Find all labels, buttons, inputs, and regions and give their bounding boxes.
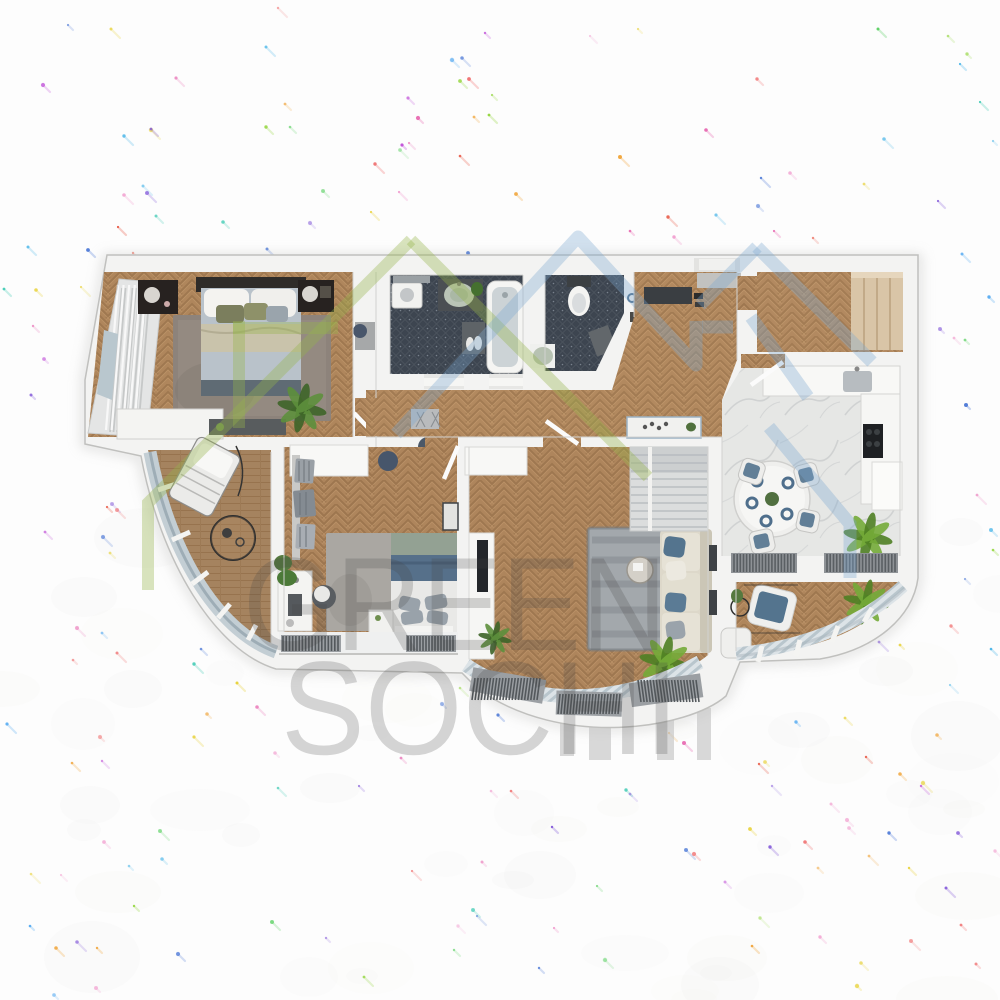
svg-text:SOCHI: SOCHI <box>281 635 679 783</box>
